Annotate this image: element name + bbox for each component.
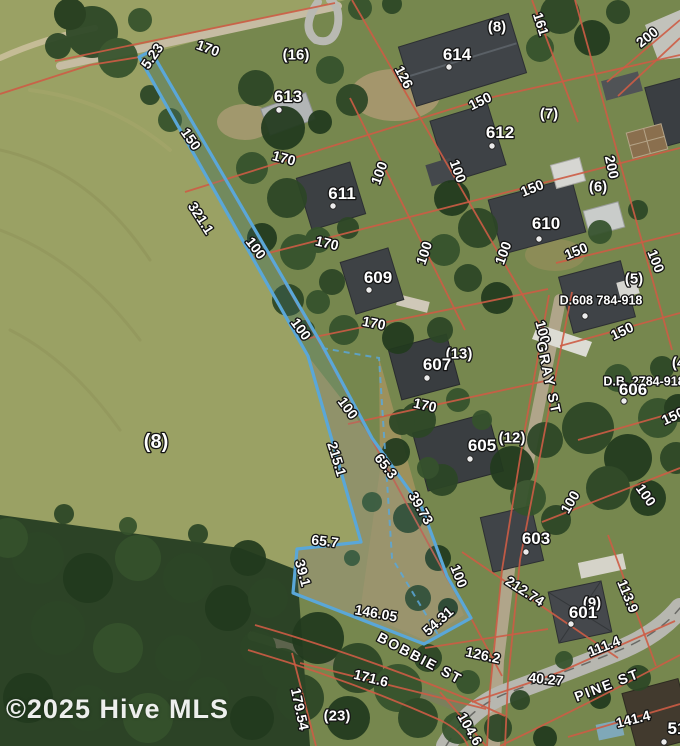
- house-dot: [446, 64, 452, 70]
- parcel-label-610: 610: [532, 214, 560, 233]
- house-dot: [489, 143, 495, 149]
- lot-label-(5): (5): [625, 270, 643, 287]
- lot-label-(7): (7): [540, 105, 558, 122]
- map-canvas: 5.23170(16)613(8)161200614126150(7)61215…: [0, 0, 680, 746]
- lot-large-label-(8): (8): [144, 431, 168, 453]
- lot-label-(4): (4): [672, 354, 680, 371]
- lot-label-(6): (6): [589, 178, 607, 195]
- dim-label-65.7: 65.7: [311, 531, 340, 550]
- parcel-label-605: 605: [468, 436, 496, 455]
- house-dot: [536, 236, 542, 242]
- lot-label-(23): (23): [324, 707, 351, 724]
- parcel-label-614: 614: [443, 45, 472, 64]
- house-dot: [366, 287, 372, 293]
- lot-label-(12): (12): [499, 429, 526, 446]
- house-dot: [424, 375, 430, 381]
- parcel-label-607: 607: [423, 355, 451, 374]
- house-dot: [661, 739, 667, 745]
- house-dot: [467, 456, 473, 462]
- parcel-label-609: 609: [364, 268, 392, 287]
- aerial-plat-map: 5.23170(16)613(8)161200614126150(7)61215…: [0, 0, 680, 746]
- house-dot: [582, 313, 588, 319]
- parcel-label-613: 613: [274, 87, 302, 106]
- house-dot: [330, 203, 336, 209]
- parcel-label-611: 611: [328, 184, 355, 203]
- parcel-label-603: 603: [522, 529, 550, 548]
- house-dot: [276, 107, 282, 113]
- house-dot: [523, 549, 529, 555]
- lot-label-(8): (8): [488, 18, 506, 35]
- parcel-label-601: 601: [569, 603, 597, 622]
- mls-watermark: ©2025 Hive MLS: [6, 694, 229, 725]
- lot-label-(16): (16): [283, 46, 310, 63]
- parcel-label-612: 612: [486, 123, 514, 142]
- parcel-label-606: 606: [619, 380, 647, 399]
- deed-label-D.608784-918: D.608 784-918: [560, 293, 643, 307]
- parcel-label-51: 51: [668, 719, 680, 738]
